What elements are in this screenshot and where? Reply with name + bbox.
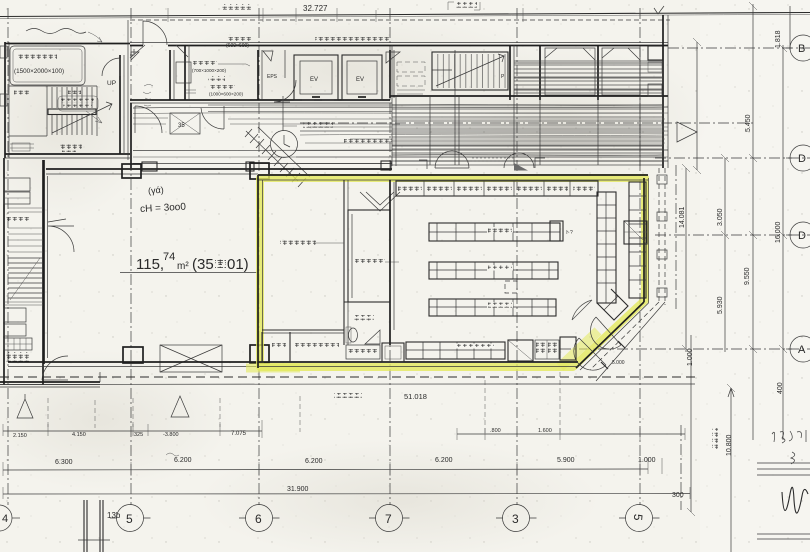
svg-text:(γά): (γά) (148, 185, 164, 196)
svg-text:1.818: 1.818 (775, 30, 782, 48)
svg-text:51.018: 51.018 (404, 392, 427, 401)
svg-text:A: A (798, 344, 806, 356)
svg-text:6: 6 (255, 512, 262, 526)
svg-text:32.727: 32.727 (303, 4, 328, 13)
svg-text:1.000: 1.000 (638, 457, 656, 464)
svg-text:5.930: 5.930 (717, 296, 724, 314)
svg-text:13b: 13b (107, 511, 121, 520)
svg-text:9.550: 9.550 (744, 267, 751, 285)
svg-text:5.900: 5.900 (557, 457, 575, 464)
svg-text:.800: .800 (490, 428, 501, 434)
svg-text:5: 5 (126, 512, 133, 526)
svg-text:(600×600): (600×600) (226, 43, 249, 49)
svg-text:325: 325 (134, 432, 143, 438)
svg-text:35: 35 (178, 123, 185, 129)
svg-text:ト?: ト? (565, 230, 573, 236)
svg-text:(35: (35 (192, 256, 214, 273)
svg-text:UP: UP (107, 80, 116, 87)
svg-text:m²: m² (177, 261, 189, 272)
svg-text:2.150: 2.150 (13, 433, 27, 439)
svg-text:115,: 115, (136, 256, 164, 273)
svg-text:31.900: 31.900 (287, 486, 309, 493)
svg-text:300: 300 (672, 492, 684, 499)
svg-text:6.200: 6.200 (174, 457, 192, 464)
svg-text:16.000: 16.000 (775, 221, 782, 243)
svg-text:6.200: 6.200 (305, 458, 323, 465)
svg-text:4: 4 (2, 513, 8, 525)
svg-text:74: 74 (163, 251, 175, 263)
svg-text:EPS: EPS (267, 74, 278, 80)
svg-text:(1000×600×200): (1000×600×200) (209, 92, 243, 97)
svg-text:14.081: 14.081 (679, 206, 686, 228)
svg-text:7: 7 (385, 512, 392, 526)
svg-text:B: B (798, 43, 805, 55)
svg-text:D: D (798, 230, 806, 242)
svg-text:1.600: 1.600 (538, 428, 552, 434)
svg-text:7.075: 7.075 (231, 431, 247, 437)
svg-text:6.300: 6.300 (55, 459, 73, 466)
svg-text:01): 01) (227, 256, 249, 273)
svg-text:EV: EV (310, 77, 318, 83)
svg-text:4.150: 4.150 (72, 432, 86, 438)
svg-text:400: 400 (777, 382, 784, 394)
svg-text:3: 3 (512, 512, 519, 526)
svg-text:-3.800: -3.800 (163, 432, 179, 438)
svg-text:(1500×2000×100): (1500×2000×100) (14, 68, 64, 75)
svg-text:6.200: 6.200 (435, 457, 453, 464)
svg-text:10.800: 10.800 (726, 434, 733, 456)
svg-text:D: D (798, 153, 806, 165)
svg-text:EV: EV (356, 77, 364, 83)
svg-text:(700×1000×200): (700×1000×200) (192, 68, 226, 73)
svg-text:3.050: 3.050 (717, 208, 724, 226)
